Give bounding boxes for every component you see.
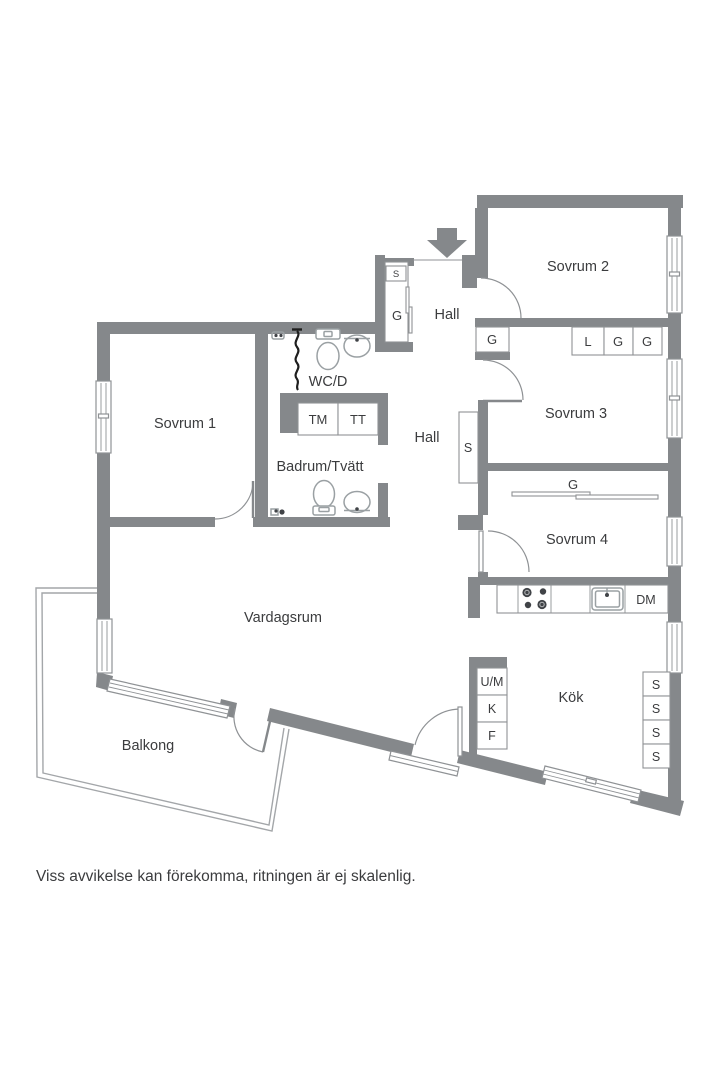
pantry-label-s3: S bbox=[652, 726, 660, 740]
appliance-label-k: K bbox=[488, 702, 497, 716]
door-sovrum2 bbox=[481, 278, 521, 318]
pantry-label-s2: S bbox=[652, 702, 660, 716]
disclaimer-text: Viss avvikelse kan förekomma, ritningen … bbox=[36, 868, 416, 885]
closet-label-sovrum4-g: G bbox=[568, 477, 578, 492]
appliance-label-tt: TT bbox=[350, 412, 366, 427]
room-label-balkong: Balkong bbox=[122, 738, 174, 754]
window-kok-bottom bbox=[542, 766, 641, 802]
window-kok-right bbox=[667, 622, 682, 673]
window-sovrum1 bbox=[96, 381, 111, 453]
closet-label-entry-s: S bbox=[393, 269, 399, 280]
floor-plan: Sovrum 1 Sovrum 2 Sovrum 3 Sovrum 4 Hall… bbox=[0, 0, 720, 1080]
room-label-vardagsrum: Vardagsrum bbox=[244, 610, 322, 626]
door-sovrum1 bbox=[215, 481, 253, 519]
room-label-badrum: Badrum/Tvätt bbox=[276, 459, 363, 475]
room-label-wc: WC/D bbox=[309, 374, 348, 390]
toilet-icon-wc bbox=[316, 329, 340, 370]
door-sovrum3 bbox=[483, 360, 523, 401]
closet-label-hall-g: G bbox=[487, 332, 497, 347]
room-label-sovrum4: Sovrum 4 bbox=[546, 532, 608, 548]
basin-icon-badrum bbox=[344, 492, 370, 513]
room-label-sovrum2: Sovrum 2 bbox=[547, 259, 609, 275]
closet-label-hall-s: S bbox=[464, 441, 472, 455]
window-sovrum4 bbox=[667, 517, 682, 566]
door-kok bbox=[415, 707, 462, 756]
sink-icon bbox=[592, 588, 623, 610]
badrum-fixtures bbox=[271, 481, 370, 516]
room-label-sovrum1: Sovrum 1 bbox=[154, 416, 216, 432]
appliance-label-dm: DM bbox=[636, 593, 655, 607]
appliance-label-tm: TM bbox=[309, 412, 328, 427]
closet-label-g2: G bbox=[642, 334, 652, 349]
window-sovrum2 bbox=[667, 236, 682, 313]
pantry-label-s1: S bbox=[652, 678, 660, 692]
entrance-arrow bbox=[427, 228, 467, 258]
door-balkong bbox=[234, 708, 271, 752]
basin-icon-wc bbox=[344, 335, 370, 357]
room-label-kok: Kök bbox=[559, 690, 585, 706]
room-label-hall-upper: Hall bbox=[435, 307, 460, 323]
room-label-sovrum3: Sovrum 3 bbox=[545, 406, 607, 422]
closet-label-l: L bbox=[584, 334, 591, 349]
window-vardagsrum-left bbox=[97, 619, 112, 673]
window-sovrum3 bbox=[667, 359, 682, 438]
sovrum4-sliding-doors bbox=[512, 492, 658, 499]
toilet-icon-badrum bbox=[313, 481, 335, 516]
appliance-label-um: U/M bbox=[481, 675, 504, 689]
window-sidelight bbox=[389, 751, 459, 776]
drain-icon bbox=[271, 509, 285, 515]
door-sovrum4 bbox=[479, 531, 529, 572]
room-label-hall-lower: Hall bbox=[415, 430, 440, 446]
pantry-label-s4: S bbox=[652, 750, 660, 764]
closet-label-entry-g: G bbox=[392, 308, 402, 323]
window-balkong-band bbox=[107, 679, 230, 718]
appliance-label-f: F bbox=[488, 729, 496, 743]
closet-label-g1: G bbox=[613, 334, 623, 349]
shower-icon bbox=[292, 330, 302, 391]
